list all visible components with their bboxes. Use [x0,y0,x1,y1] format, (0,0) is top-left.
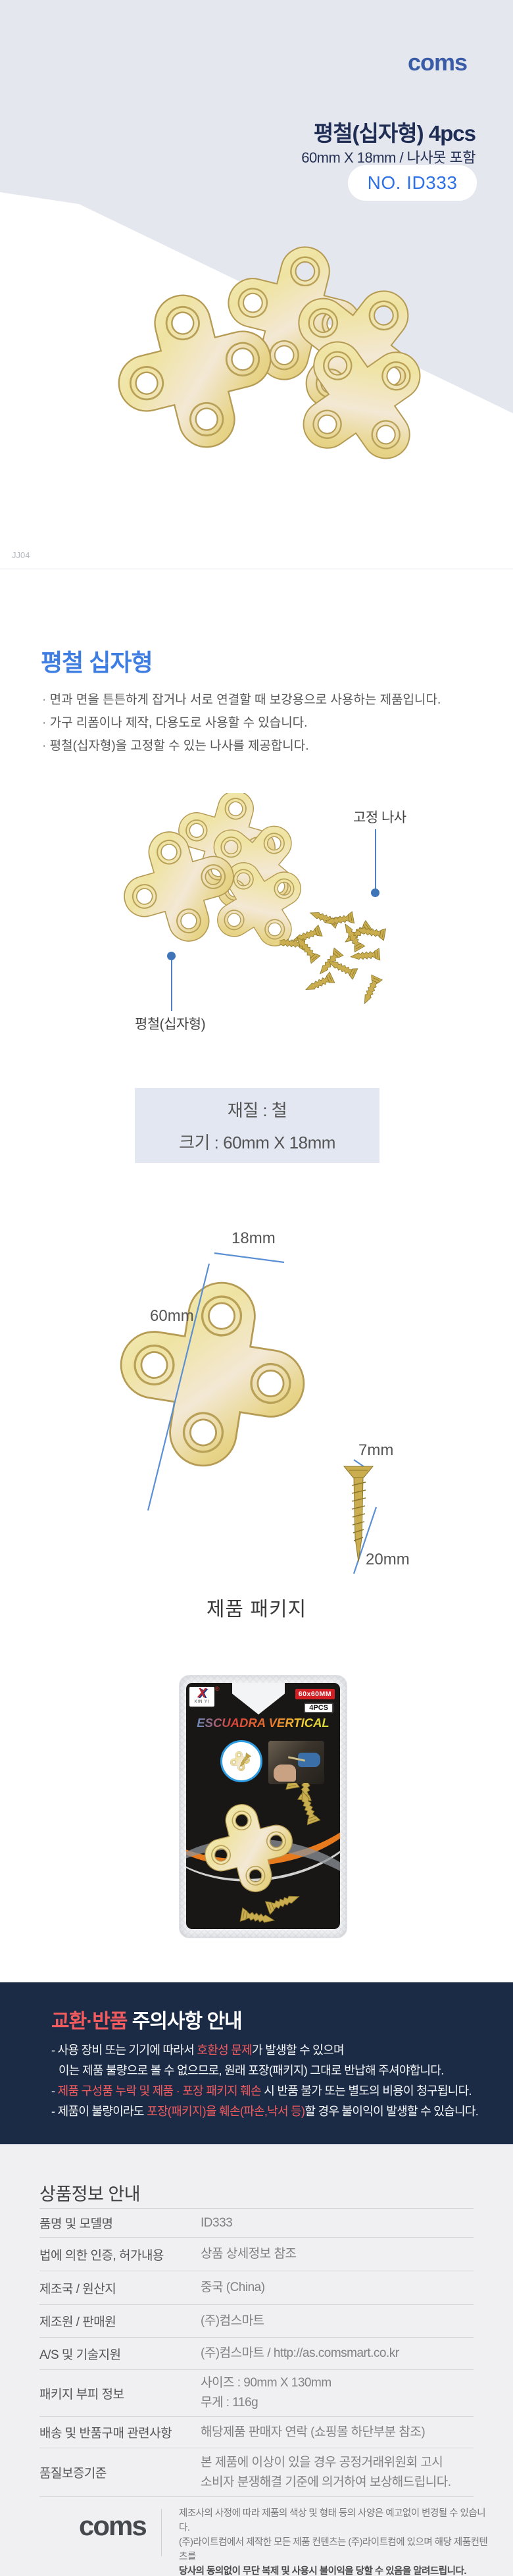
exchange-return-notice: 교환·반품 주의사항 안내 - 사용 장비 또는 기기에 따라서 호환성 문제가… [0,1982,513,2144]
package-title: ESCUADRA VERTICAL [186,1716,340,1730]
notice-line: 이는 제품 불량으로 볼 수 없으므로, 원래 포장(패키지) 그대로 반납해 … [51,2061,478,2081]
footer-coms-logo: coms [79,2510,146,2542]
product-title: 평철(십자형) 4pcs [314,116,476,147]
table-row: 품명 및 모델명 ID333 [39,2208,474,2237]
table-row: 제조원 / 판매원 (주)컴스마트 [39,2304,474,2337]
section-heading-intro: 평철 십자형 [41,644,153,678]
plate-callout-label: 평철(십자형) [135,1014,205,1033]
notice-line: - 제품이 불량이라도 포장(패키지)을 훼손(파손,낙서 등)할 경우 불이익… [51,2101,478,2122]
row-label: 배송 및 반품구매 관련사항 [39,2423,201,2441]
spec-material: 재질 : 철 [228,1097,287,1121]
row-label: 품질보증기준 [39,2463,201,2481]
row-value: (주)컴스마트 [201,2311,474,2331]
size-badge: 60x60MM [295,1689,335,1699]
coms-logo: coms [408,49,467,76]
plates-photo [105,793,303,991]
hand-image [274,1765,296,1782]
dimension-diagram [92,1247,421,1583]
row-value: 본 제품에 이상이 있을 경우 공정거래위원회 고시 소비자 분쟁해결 기준에 … [201,2453,474,2492]
row-value: (주)컴스마트 / http://as.comsmart.co.kr [201,2344,474,2363]
intro-bullet: 가구 리폼이나 제작, 다용도로 사용할 수 있습니다. [42,711,441,734]
registered-mark: ® [215,1686,220,1692]
table-row: 배송 및 반품구매 관련사항 해당제품 판매자 연락 (쇼핑몰 하단부분 참조) [39,2416,474,2448]
dim-width-label: 18mm [232,1229,276,1248]
row-label: 법에 의한 인증, 허가내용 [39,2246,201,2263]
row-value: 사이즈 : 90mm X 130mm 무게 : 116g [201,2373,474,2413]
footer-line: 제조사의 사정에 따라 제품의 색상 및 형태 등의 사양은 예고없이 변경될 … [179,2506,488,2535]
spec-size: 크기 : 60mm X 18mm [179,1129,335,1154]
brand-name: XIN YI [189,1700,214,1704]
footer-line-bold: 당사의 동의없이 무단 복제 및 사용시 불이익을 당할 수 있음을 알려드립니… [179,2564,488,2576]
mini-plate-diagram [227,1747,256,1776]
notice-line: - 사용 장비 또는 기기에 따라서 호환성 문제가 발생할 수 있으며 [51,2040,478,2061]
row-label: 품명 및 모델명 [39,2214,201,2232]
model-number-badge: NO. ID333 [348,165,477,201]
notice-title-accent: 교환·반품 [51,2011,127,2032]
footer-legal-text: 제조사의 사정에 따라 제품의 색상 및 형태 등의 사양은 예고없이 변경될 … [179,2506,488,2576]
dim-height-label: 60mm [150,1307,194,1326]
footer-line: (주)라이트컴에서 제작한 모든 제품 컨텐츠는 (주)라이트컴에 있으며 해당… [179,2535,488,2564]
table-row: 패키지 부피 정보 사이즈 : 90mm X 130mm 무게 : 116g [39,2369,474,2416]
package-card: X XIN YI ® 60x60MM 4PCS ESCUADRA VERTICA… [186,1683,340,1929]
product-subtitle: 60mm X 18mm / 나사못 포함 [301,146,476,167]
intro-bullet: 평철(십자형)을 고정할 수 있는 나사를 제공합니다. [42,734,441,758]
intro-bullet-list: 면과 면을 튼튼하게 잡거나 서로 연결할 때 보강용으로 사용하는 제품입니다… [42,688,441,758]
screws-photo [280,889,418,1004]
row-label: 패키지 부피 정보 [39,2384,201,2402]
row-value: 중국 (China) [201,2278,474,2298]
package-section-heading: 제품 패키지 [0,1593,513,1622]
screw-callout-label: 고정 나사 [353,807,406,827]
dim-screw-length-label: 20mm [366,1551,410,1569]
row-label: A/S 및 기술지원 [39,2345,201,2363]
row-label: 제조국 / 원산지 [39,2279,201,2297]
plate-callout-line [171,960,172,1011]
info-heading: 상품정보 안내 [39,2180,140,2205]
notice-title-rest: 주의사항 안내 [127,2011,241,2032]
quantity-badge: 4PCS [304,1703,333,1713]
screw-callout-dot [371,889,379,897]
screw-callout-line [375,829,376,891]
spec-box: 재질 : 철 크기 : 60mm X 18mm [135,1088,379,1163]
intro-bullet: 면과 면을 튼튼하게 잡거나 서로 연결할 때 보강용으로 사용하는 제품입니다… [42,688,441,711]
row-label: 제조원 / 판매원 [39,2312,201,2330]
packed-product [189,1783,337,1924]
table-row: 제조국 / 원산지 중국 (China) [39,2271,474,2304]
table-row: 품질보증기준 본 제품에 이상이 있을 경우 공정거래위원회 고시 소비자 분쟁… [39,2448,474,2497]
package-photo: X XIN YI ® 60x60MM 4PCS ESCUADRA VERTICA… [179,1675,347,1938]
table-row: 법에 의한 인증, 허가내용 상품 상세정보 참조 [39,2237,474,2271]
footer-divider [161,2509,162,2556]
row-value: 상품 상세정보 참조 [201,2244,474,2264]
notice-title: 교환·반품 주의사항 안내 [51,2005,242,2034]
product-detail-page: coms 평철(십자형) 4pcs 60mm X 18mm / 나사못 포함 N… [0,0,513,2576]
row-value: ID333 [201,2213,474,2233]
brand-mark: X [189,1687,214,1700]
hero-product-image [79,242,447,545]
dim-screw-head-label: 7mm [358,1441,393,1460]
table-row: A/S 및 기술지원 (주)컴스마트 / http://as.comsmart.… [39,2337,474,2369]
info-table: 품명 및 모델명 ID333 법에 의한 인증, 허가내용 상품 상세정보 참조… [39,2208,474,2497]
row-value: 해당제품 판매자 연락 (쇼핑몰 하단부분 참조) [201,2423,474,2442]
header-hero-section: coms 평철(십자형) 4pcs 60mm X 18mm / 나사못 포함 N… [0,0,513,569]
usage-diagram-inset [220,1740,262,1782]
notice-lines: - 사용 장비 또는 기기에 따라서 호환성 문제가 발생할 수 있으며 이는 … [51,2040,478,2122]
image-code-watermark: JJ04 [12,550,30,560]
hang-hole [232,1683,285,1714]
usage-photo-inset [268,1741,324,1784]
brand-logo: X XIN YI [189,1687,214,1707]
notice-line: - 제품 구성품 누락 및 제품 · 포장 패키지 훼손 시 반품 불가 또는 … [51,2081,478,2101]
